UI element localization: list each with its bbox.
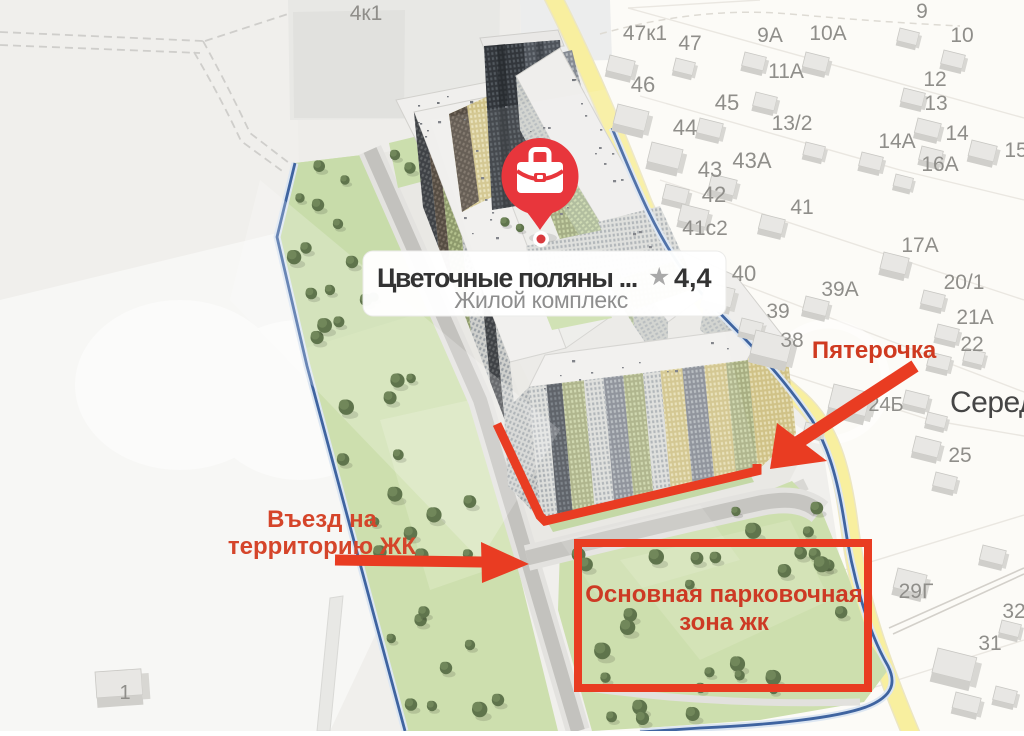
svg-text:43А: 43А (732, 148, 771, 173)
svg-text:42: 42 (702, 182, 726, 207)
svg-text:13/2: 13/2 (772, 112, 813, 135)
svg-text:38: 38 (780, 329, 803, 352)
svg-text:40: 40 (732, 261, 756, 286)
svg-text:29Г: 29Г (899, 580, 934, 603)
svg-text:25: 25 (948, 444, 971, 467)
svg-text:12: 12 (923, 68, 946, 91)
svg-text:Жилой комплекс: Жилой комплекс (454, 287, 628, 313)
svg-text:Пятерочка: Пятерочка (812, 337, 937, 364)
svg-text:16А: 16А (921, 153, 958, 176)
svg-text:41с2: 41с2 (682, 217, 728, 240)
svg-text:Середнево: Середнево (950, 386, 1024, 419)
svg-text:39А: 39А (821, 278, 858, 301)
svg-text:45: 45 (715, 90, 739, 115)
svg-text:★: ★ (648, 263, 670, 291)
svg-text:11А: 11А (768, 60, 804, 83)
svg-text:14: 14 (945, 122, 969, 145)
svg-text:4к1: 4к1 (350, 2, 383, 25)
svg-text:47: 47 (678, 32, 701, 55)
svg-text:территорию ЖК: территорию ЖК (228, 533, 417, 560)
svg-text:9: 9 (916, 0, 928, 23)
svg-text:17А: 17А (901, 234, 938, 257)
svg-text:13: 13 (924, 92, 947, 115)
svg-text:21А: 21А (956, 306, 993, 329)
svg-text:31: 31 (978, 632, 1001, 655)
svg-text:15: 15 (1004, 139, 1024, 162)
svg-text:32: 32 (1002, 600, 1024, 623)
svg-text:10: 10 (950, 24, 973, 47)
svg-text:22: 22 (960, 333, 983, 356)
svg-text:зона жк: зона жк (679, 609, 770, 636)
svg-text:20/1: 20/1 (944, 271, 985, 294)
svg-text:Въезд на: Въезд на (267, 506, 378, 533)
svg-text:Основная парковочная: Основная парковочная (585, 581, 863, 608)
svg-text:47к1: 47к1 (623, 22, 667, 45)
svg-text:14А: 14А (878, 130, 915, 153)
svg-text:4,4: 4,4 (674, 263, 712, 293)
svg-text:39: 39 (766, 300, 789, 323)
svg-text:44: 44 (673, 115, 697, 140)
svg-text:9А: 9А (757, 24, 783, 47)
svg-text:43: 43 (698, 157, 722, 182)
svg-text:46: 46 (631, 72, 655, 97)
svg-text:1: 1 (119, 682, 130, 704)
svg-text:41: 41 (790, 196, 813, 219)
svg-text:10А: 10А (809, 22, 846, 45)
